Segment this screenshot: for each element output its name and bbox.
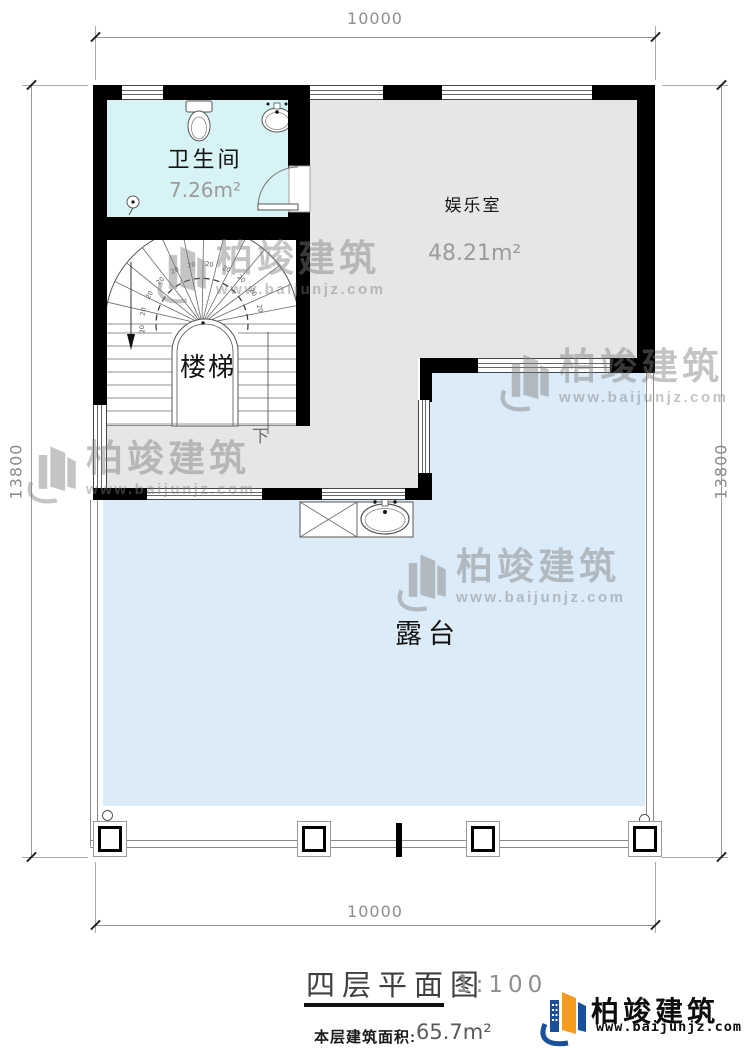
- wall-segment: [93, 100, 107, 405]
- terrace-counter: [296, 496, 420, 542]
- svg-text:20: 20: [144, 289, 155, 300]
- bathroom-door: [250, 158, 320, 220]
- wall-segment: [93, 217, 310, 240]
- door-leaf: [258, 204, 298, 210]
- svg-text:20: 20: [155, 275, 167, 287]
- toilet-tank-icon: [186, 101, 212, 112]
- terrace-railing-right: [653, 373, 654, 846]
- wall-segment: [420, 358, 432, 402]
- terrace-floor: [103, 500, 430, 806]
- stair-down-arrow: [127, 334, 135, 350]
- room-label-terrace: 露台: [388, 612, 468, 651]
- wall-segment: [262, 488, 322, 500]
- entertainment-room-floor: [310, 100, 637, 358]
- wall-segment: [383, 85, 442, 100]
- terrace-railing-right: [646, 373, 647, 846]
- brand-logo-url: www.baijunjz.com: [596, 1019, 742, 1035]
- svg-text:20: 20: [236, 273, 247, 284]
- window: [147, 488, 262, 500]
- window: [478, 358, 610, 373]
- svg-text:20: 20: [187, 260, 197, 269]
- column: [93, 821, 127, 857]
- floor-plan-canvas: 20 20 20 20 20 20 20 20 20 20 20 卫生间 7.2…: [0, 0, 750, 1053]
- terrace-floor: [430, 373, 645, 806]
- window: [418, 400, 430, 473]
- wall-segment: [592, 85, 655, 100]
- room-label-bathroom: 卫生间: [155, 142, 255, 174]
- terrace-railing-left: [90, 500, 91, 846]
- stairs-drawing: 20 20 20 20 20 20 20 20 20 20 20: [90, 226, 320, 438]
- brand-logo-icon: [538, 988, 590, 1046]
- column: [628, 821, 662, 857]
- column: [297, 821, 331, 857]
- window: [310, 85, 383, 100]
- dim-top: 10000: [335, 9, 415, 28]
- column: [466, 821, 500, 857]
- railing-post: [396, 823, 402, 857]
- dim-left: 13800: [7, 442, 26, 502]
- room-area-entertainment: 48.21m²: [428, 241, 518, 266]
- watermark-logo-icon: [25, 440, 80, 506]
- terrace-railing-bottom: [90, 847, 658, 848]
- svg-text:20: 20: [138, 325, 147, 334]
- wall-segment: [637, 100, 655, 373]
- room-label-stairs: 楼梯: [176, 347, 240, 384]
- wall-segment: [93, 85, 122, 100]
- svg-text:20: 20: [139, 307, 149, 317]
- svg-text:20: 20: [221, 264, 232, 275]
- plan-scale: 1:100: [456, 972, 547, 998]
- terrace-railing-left: [97, 500, 98, 846]
- room-label-entertainment: 娱乐室: [438, 191, 508, 216]
- landing-floor: [310, 358, 418, 488]
- title-underline: [304, 1003, 444, 1007]
- window: [93, 405, 107, 488]
- wall-segment: [610, 358, 655, 373]
- wall-segment: [296, 240, 310, 426]
- floor-drain: [102, 810, 113, 821]
- window: [122, 85, 163, 100]
- dim-bottom: 10000: [335, 902, 415, 921]
- room-area-bathroom: 7.26m²: [165, 178, 245, 202]
- floor-area-label: 本层建筑面积:: [314, 1026, 416, 1047]
- wall-segment: [93, 488, 147, 500]
- wall-segment: [163, 85, 310, 100]
- stair-down-label: 下: [252, 422, 269, 447]
- wall-segment: [418, 473, 432, 500]
- window: [322, 488, 405, 500]
- floor-area-value: 65.7m²: [416, 1020, 492, 1044]
- window: [442, 85, 592, 100]
- dim-right: 13800: [712, 442, 731, 502]
- svg-text:20: 20: [205, 260, 214, 269]
- terrace-railing-bottom: [90, 840, 658, 841]
